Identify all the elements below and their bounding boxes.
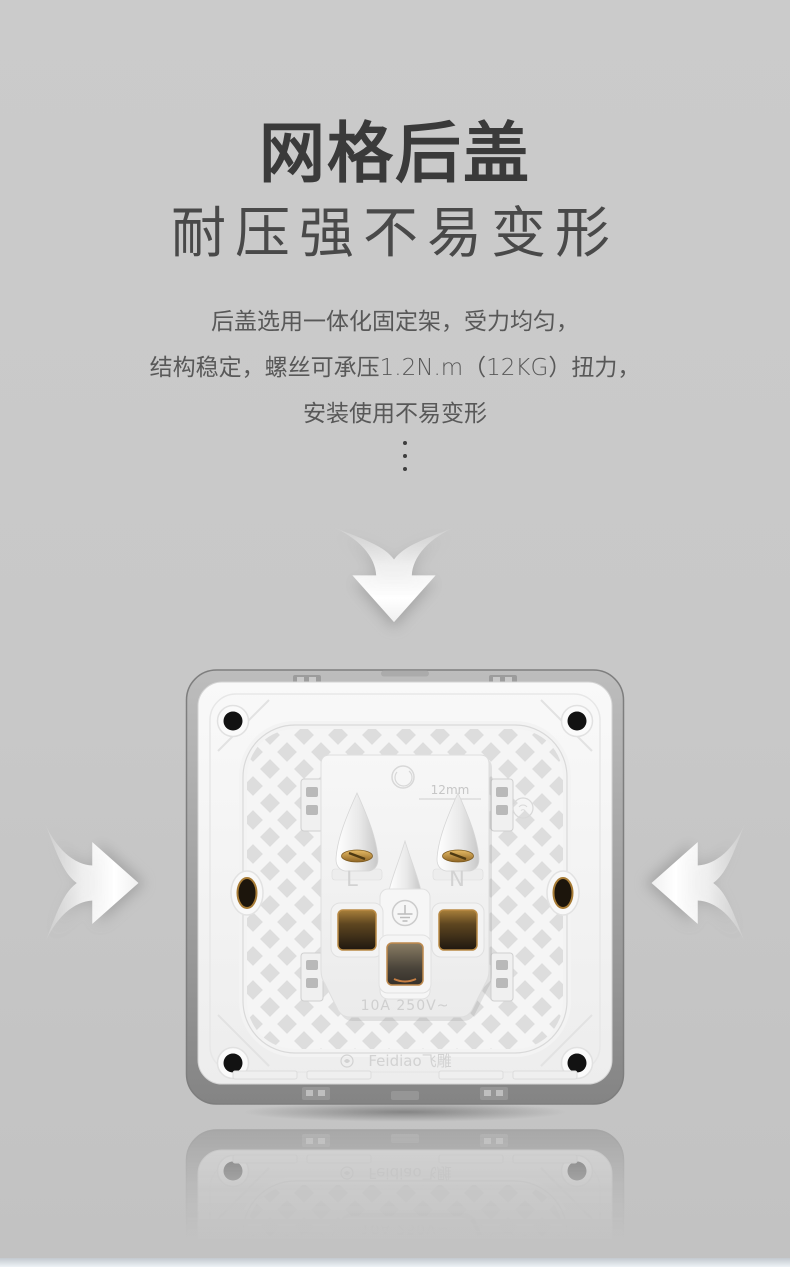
page-subtitle: 耐压强不易变形: [0, 188, 790, 268]
description-line: 安装使用不易变形: [0, 391, 790, 437]
left-pointing-arrow-icon: [641, 818, 758, 948]
page-title: 网格后盖: [0, 100, 790, 196]
description-line: 后盖选用一体化固定架，受力均匀，: [0, 299, 790, 345]
description-line: 结构稳定，螺丝可承压1.2N.m（12KG）扭力，: [0, 345, 790, 391]
vertical-ellipsis-icon: [403, 441, 407, 471]
socket-back-product-photo: [185, 667, 625, 1113]
right-pointing-arrow-icon: [33, 818, 150, 948]
down-arrow-icon: [328, 516, 460, 632]
floor-highlight: [0, 1258, 790, 1267]
product-reflection: [185, 1121, 625, 1267]
product-banner: 12mm: [0, 0, 790, 1267]
description: 后盖选用一体化固定架，受力均匀， 结构稳定，螺丝可承压1.2N.m（12KG）扭…: [0, 299, 790, 437]
